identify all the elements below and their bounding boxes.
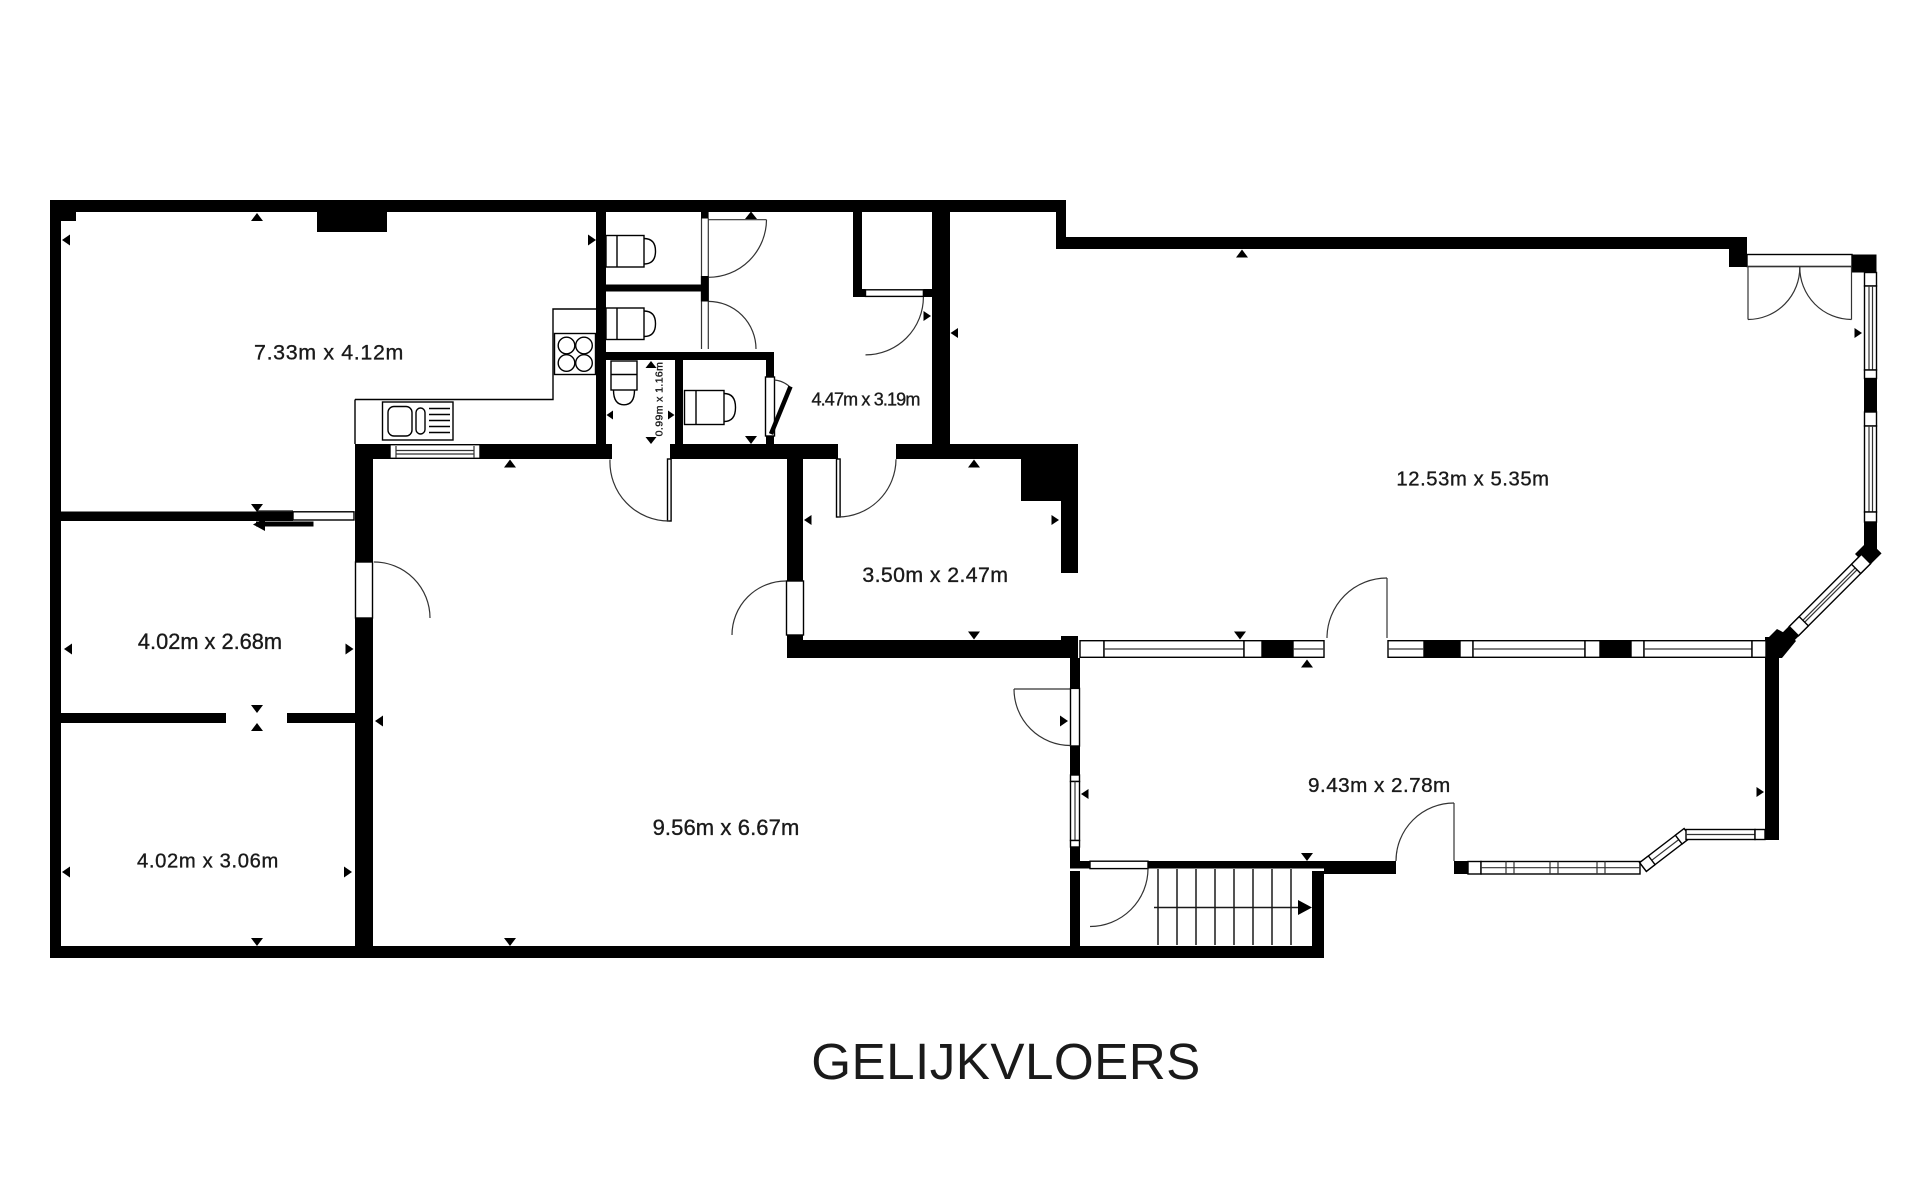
svg-text:4.02m x 2.68m: 4.02m x 2.68m [138, 629, 282, 654]
svg-text:GELIJKVLOERS: GELIJKVLOERS [811, 1033, 1200, 1090]
svg-text:3.50m x 2.47m: 3.50m x 2.47m [862, 563, 1008, 587]
svg-text:0.99m x 1.16m: 0.99m x 1.16m [654, 362, 666, 437]
svg-text:7.33m x 4.12m: 7.33m x 4.12m [254, 341, 404, 365]
svg-text:4.02m x 3.06m: 4.02m x 3.06m [137, 851, 279, 873]
svg-text:9.56m x 6.67m: 9.56m x 6.67m [653, 815, 800, 840]
svg-text:9.43m x 2.78m: 9.43m x 2.78m [1308, 774, 1451, 797]
svg-text:4.47m x 3.19m: 4.47m x 3.19m [811, 390, 919, 410]
svg-text:12.53m x 5.35m: 12.53m x 5.35m [1396, 469, 1549, 491]
